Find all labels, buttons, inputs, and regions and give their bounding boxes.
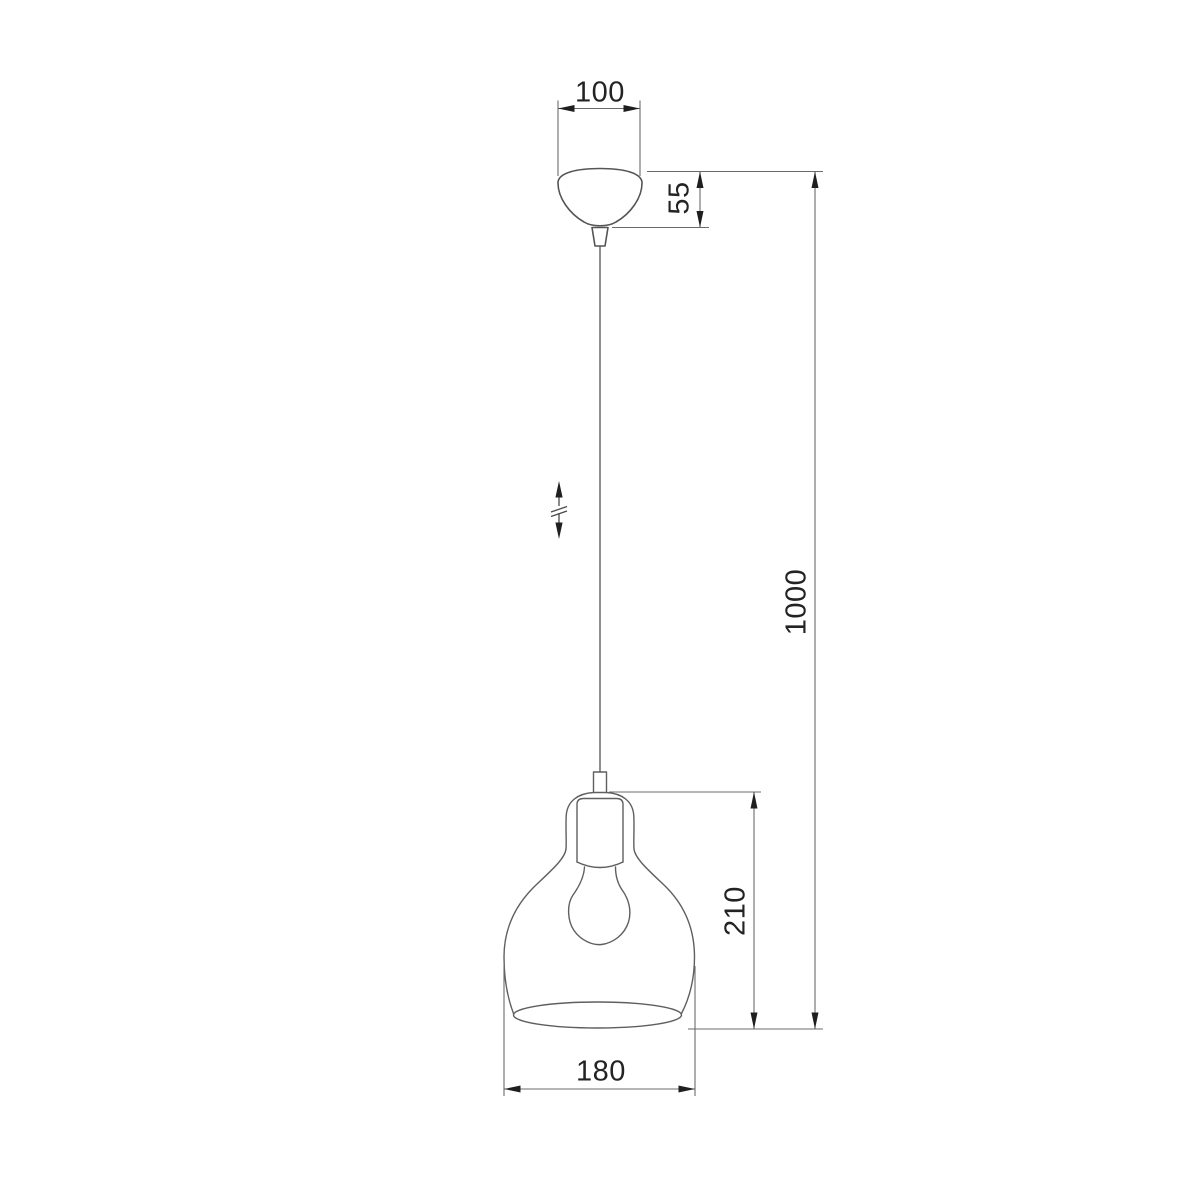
arrowhead-up [751, 792, 758, 809]
arrowhead-up [812, 172, 819, 189]
cable-grip [592, 228, 608, 247]
label-shade-diameter: 180 [576, 1058, 626, 1087]
socket-tube [577, 799, 623, 863]
technical-drawing: 100 55 1000 210 180 [0, 0, 1200, 1200]
shade-group [504, 772, 695, 1028]
arrowhead-right [624, 105, 641, 112]
shade-outline-right [607, 793, 695, 1014]
arrowhead-left [558, 105, 575, 112]
canopy-group [558, 169, 642, 247]
cord-connector [594, 772, 607, 793]
canopy-outline [558, 169, 642, 226]
light-bulb [569, 867, 630, 945]
arrowhead-down [812, 1013, 819, 1030]
arrowhead-right [679, 1086, 696, 1093]
shade-bottom-opening [514, 1002, 682, 1028]
arrowhead-up [697, 172, 704, 189]
label-canopy-height: 55 [666, 181, 695, 214]
label-suspension-drop: 1000 [783, 569, 812, 636]
arrowhead-left [504, 1086, 521, 1093]
arrowhead-down [697, 211, 704, 228]
height-adjustable-icon [551, 481, 567, 539]
label-shade-height: 210 [722, 886, 751, 936]
drawing-svg [0, 0, 1200, 1200]
adjust-arrow-up [555, 481, 562, 498]
dimension-55 [612, 172, 823, 228]
shade-outline-left [504, 793, 594, 1014]
label-canopy-width: 100 [575, 79, 625, 108]
arrowhead-down [751, 1013, 758, 1030]
dimension-100 [558, 101, 640, 177]
adjust-arrow-down [555, 523, 562, 540]
